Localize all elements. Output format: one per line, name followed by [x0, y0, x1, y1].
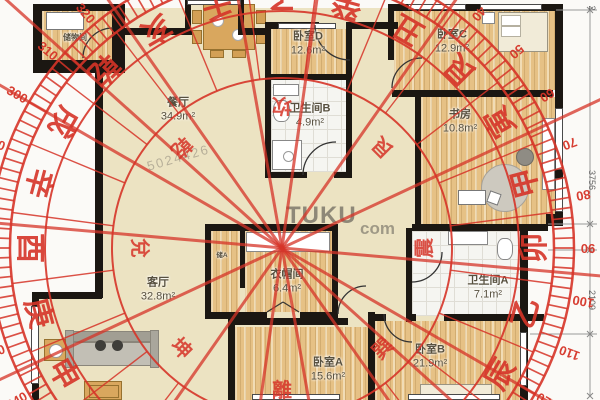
room-label-living: 客厅32.8m² — [141, 276, 175, 305]
room-label-study: 书房10.8m² — [443, 108, 477, 137]
room-label-bedroomC: 卧室C12.9m² — [435, 28, 469, 57]
room-label-bedroomA: 卧室A15.6m² — [311, 356, 345, 385]
dim-right-lower: 2109 — [587, 290, 597, 310]
room-label-storageA: 储A — [216, 252, 227, 260]
dimension-lines — [530, 8, 597, 396]
room-label-bedroomB: 卧室B21.9m² — [413, 343, 447, 372]
dimension-layer: 3756 2109 2 — [0, 0, 600, 400]
watermark-suffix: com — [360, 219, 395, 239]
dim-top-partial: 2 — [587, 5, 597, 10]
room-label-storage: 储物间 — [63, 33, 87, 43]
room-label-bedroomD: 卧室D12.6m² — [291, 30, 325, 59]
dim-right-upper: 3756 — [587, 170, 597, 190]
room-label-dining: 餐厅34.9m² — [161, 96, 195, 125]
floorplan-canvas: 3756 2109 2 储物间 餐厅34.9m² 卧室D12.6m² 卫生间B4… — [0, 0, 600, 400]
room-label-bathB: 卫生间B4.9m² — [290, 102, 331, 131]
room-label-bathA: 卫生间A7.1m² — [468, 274, 509, 303]
watermark-brand: TUKU — [286, 202, 357, 230]
room-label-closet: 衣帽间6.4m² — [271, 268, 304, 297]
